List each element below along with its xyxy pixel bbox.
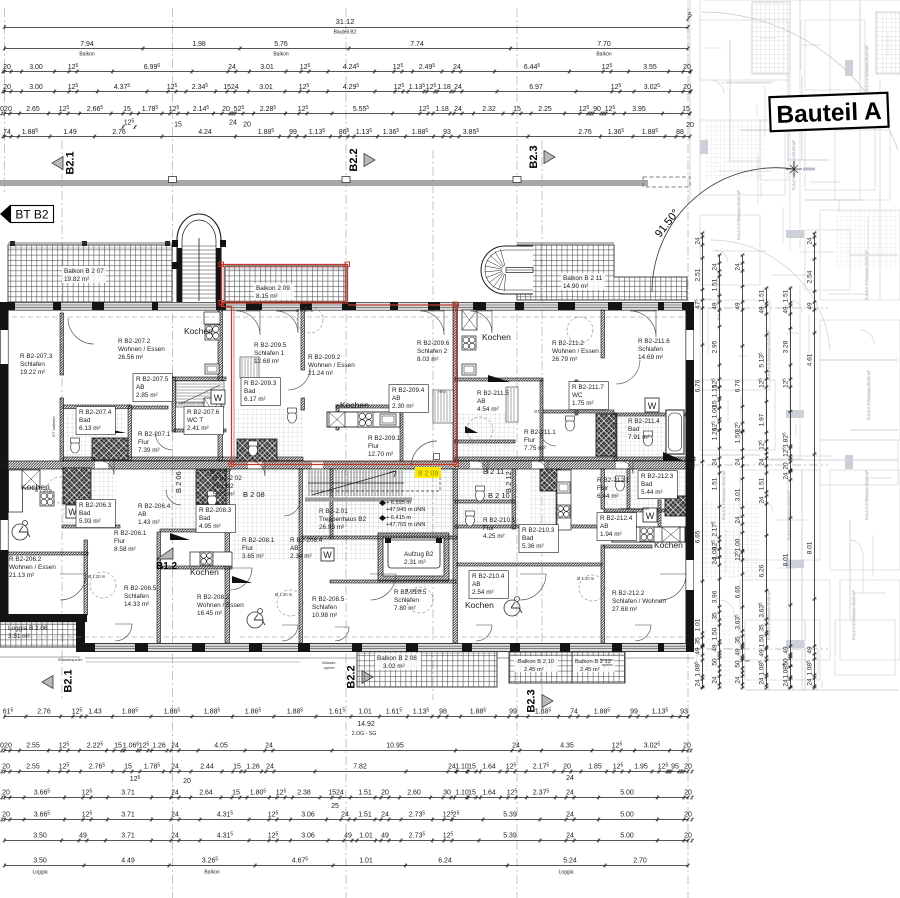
svg-text:6.76: 6.76 (735, 379, 742, 392)
svg-text:4.54 m²: 4.54 m² (477, 406, 499, 413)
svg-text:Flur: Flur (524, 437, 536, 444)
svg-text:2.60: 2.60 (407, 790, 421, 797)
svg-text:49: 49 (807, 302, 814, 310)
svg-text:1.00: 1.00 (735, 538, 742, 551)
svg-text:GT satiniert: GT satiniert (51, 416, 56, 437)
svg-text:2.30 m²: 2.30 m² (392, 403, 414, 410)
svg-text:B2.2: B2.2 (346, 665, 358, 688)
svg-text:Flur: Flur (138, 439, 150, 446)
svg-text:Kochen: Kochen (482, 332, 511, 342)
svg-text:10.98 m²: 10.98 m² (312, 612, 337, 619)
svg-text:1.51: 1.51 (759, 289, 766, 302)
svg-text:3.50: 3.50 (33, 833, 47, 840)
svg-text:6.97: 6.97 (529, 84, 543, 91)
svg-text:R B2-207.1: R B2-207.1 (138, 431, 171, 438)
svg-text:R B2-211.5: R B2-211.5 (477, 390, 509, 397)
svg-text:Balkon B 2 11: Balkon B 2 11 (563, 275, 603, 282)
svg-text:AB: AB (392, 395, 401, 402)
svg-text:27.68 m²: 27.68 m² (612, 606, 637, 613)
svg-text:Wasserspeier: Wasserspeier (58, 657, 83, 662)
svg-text:15: 15 (468, 790, 476, 797)
svg-text:Kochen: Kochen (190, 567, 219, 577)
svg-text:24: 24 (266, 764, 274, 771)
svg-text:24: 24 (512, 743, 520, 750)
svg-text:B 2 09: B 2 09 (418, 471, 438, 478)
svg-text:2.38: 2.38 (297, 790, 311, 797)
svg-text:20: 20 (2, 812, 10, 819)
svg-text:24: 24 (712, 458, 719, 466)
svg-text:Kochen: Kochen (465, 600, 494, 610)
svg-text:2.95: 2.95 (712, 340, 719, 353)
svg-text:Schlafen: Schlafen (124, 593, 149, 600)
svg-text:GT: GT (534, 409, 541, 414)
svg-text:49: 49 (344, 833, 352, 840)
svg-text:1.43: 1.43 (88, 709, 102, 716)
svg-text:AB: AB (472, 581, 481, 588)
svg-text:24: 24 (735, 458, 742, 466)
svg-text:Flur: Flur (597, 485, 609, 492)
svg-text:1.50: 1.50 (759, 634, 766, 647)
svg-text:1524: 1524 (328, 790, 344, 797)
svg-text:24: 24 (759, 496, 766, 504)
svg-text:5.39: 5.39 (503, 812, 517, 819)
svg-text:Balkon: Balkon (273, 52, 289, 58)
svg-text:5.00: 5.00 (620, 790, 634, 797)
svg-text:20: 20 (563, 764, 571, 771)
svg-text:Wohnen / Essen: Wohnen / Essen (552, 348, 599, 355)
svg-text:20: 20 (683, 743, 691, 750)
svg-text:020: 020 (0, 743, 12, 750)
svg-text:R B2-210.4: R B2-210.4 (472, 573, 505, 580)
svg-text:R B2-2 02: R B2-2 02 (213, 475, 242, 482)
svg-text:15: 15 (682, 106, 690, 113)
svg-text:20: 20 (222, 106, 230, 113)
svg-text:1.26: 1.26 (152, 743, 166, 750)
svg-text:2.55: 2.55 (26, 764, 40, 771)
svg-text:49: 49 (759, 306, 766, 314)
svg-text:24: 24 (454, 106, 462, 113)
svg-text:R B2-2.01: R B2-2.01 (319, 508, 348, 515)
svg-text:3.28: 3.28 (783, 340, 790, 353)
svg-text:2.65: 2.65 (26, 106, 40, 113)
svg-text:7.91 m²: 7.91 m² (628, 434, 650, 441)
svg-text:Bauteil A: Bauteil A (776, 98, 883, 129)
svg-text:R B2-207.3: R B2-207.3 (20, 353, 53, 360)
svg-text:+ 6.595 m: + 6.595 m (386, 500, 411, 506)
svg-text:35: 35 (712, 612, 719, 620)
svg-text:B 2 12: B 2 12 (504, 471, 513, 493)
svg-text:+47.945 m üNN: +47.945 m üNN (386, 507, 425, 513)
svg-text:2.45 m²: 2.45 m² (524, 667, 544, 673)
svg-text:R A-0 0 2 Wohnen 00.00 m²: R A-0 0 2 Wohnen 00.00 m² (864, 45, 869, 95)
svg-text:24: 24 (453, 64, 461, 71)
svg-text:2.85 m²: 2.85 m² (136, 392, 158, 399)
svg-text:W: W (646, 511, 655, 521)
svg-text:50: 50 (735, 660, 742, 668)
svg-text:B2.2: B2.2 (348, 148, 360, 171)
svg-text:Ø 1.20 m: Ø 1.20 m (577, 576, 595, 581)
svg-text:15: 15 (114, 743, 122, 750)
svg-text:2.64: 2.64 (199, 790, 213, 797)
svg-text:R B2-211.1: R B2-211.1 (524, 429, 556, 436)
svg-text:Wohnen / Essen: Wohnen / Essen (197, 602, 244, 609)
svg-text:5.93 m²: 5.93 m² (79, 518, 101, 525)
svg-text:Bad: Bad (628, 426, 640, 433)
svg-text:Schlafen / Wohnen: Schlafen / Wohnen (612, 598, 666, 605)
svg-text:R B2-209.3: R B2-209.3 (244, 380, 277, 387)
svg-text:24: 24 (759, 677, 766, 685)
svg-text:5.44 m²: 5.44 m² (641, 489, 663, 496)
svg-text:6.76: 6.76 (695, 379, 702, 392)
svg-text:R B2-209.6: R B2-209.6 (417, 340, 450, 347)
svg-text:Kochen: Kochen (654, 540, 683, 550)
svg-text:AB: AB (600, 523, 609, 530)
svg-text:1524: 1524 (223, 84, 239, 91)
svg-text:14.90 m²: 14.90 m² (563, 283, 588, 290)
svg-text:20: 20 (684, 764, 692, 771)
svg-text:24: 24 (229, 120, 237, 127)
svg-text:speier: speier (324, 665, 336, 670)
svg-text:2.32: 2.32 (482, 106, 496, 113)
svg-text:4.61: 4.61 (807, 353, 814, 366)
svg-text:26.93 m²: 26.93 m² (319, 524, 344, 531)
svg-text:35: 35 (759, 624, 766, 632)
svg-text:16.45 m²: 16.45 m² (197, 610, 222, 617)
svg-text:20: 20 (3, 84, 11, 91)
svg-text:20: 20 (684, 790, 692, 797)
svg-text:2.25: 2.25 (538, 106, 552, 113)
svg-text:Flur: Flur (114, 538, 126, 545)
svg-text:1.26: 1.26 (712, 427, 719, 440)
svg-text:49: 49 (712, 644, 719, 652)
svg-text:49: 49 (807, 646, 814, 654)
svg-text:3.95: 3.95 (632, 106, 646, 113)
svg-text:3.71: 3.71 (121, 833, 135, 840)
svg-text:2.76: 2.76 (37, 709, 51, 716)
svg-text:3.50: 3.50 (33, 858, 47, 865)
svg-text:24: 24 (783, 679, 790, 687)
svg-text:35: 35 (695, 637, 702, 645)
svg-text:R A-0 0 2 Wohnen 00.00 m²: R A-0 0 2 Wohnen 00.00 m² (864, 470, 869, 520)
svg-text:3.55: 3.55 (643, 64, 657, 71)
svg-text:24: 24 (695, 237, 702, 245)
svg-text:Aufzug B2: Aufzug B2 (404, 551, 434, 558)
svg-text:1.00: 1.00 (712, 405, 719, 418)
svg-text:Kochen: Kochen (21, 482, 50, 492)
svg-text:Wohnen / Essen: Wohnen / Essen (308, 362, 355, 369)
svg-text:B 2 07: B 2 07 (210, 467, 232, 476)
svg-text:24: 24 (454, 84, 462, 91)
svg-text:3.71: 3.71 (121, 812, 135, 819)
svg-text:49: 49 (735, 648, 742, 656)
svg-text:10.95: 10.95 (386, 743, 404, 750)
svg-text:3.01: 3.01 (259, 84, 273, 91)
svg-text:R B2-212.2: R B2-212.2 (612, 590, 645, 597)
svg-text:AB: AB (290, 545, 299, 552)
svg-text:20: 20 (2, 764, 10, 771)
svg-text:24: 24 (171, 812, 179, 819)
svg-text:6.24: 6.24 (438, 858, 452, 865)
svg-text:7.74: 7.74 (410, 41, 424, 48)
svg-text:50: 50 (712, 658, 719, 666)
svg-text:Ø 1.20 m: Ø 1.20 m (296, 308, 314, 313)
svg-text:R B2-207.5: R B2-207.5 (136, 376, 169, 383)
svg-text:Flur: Flur (242, 545, 254, 552)
svg-text:Ø 1.20 m: Ø 1.20 m (275, 592, 293, 597)
svg-text:B2.1: B2.1 (63, 669, 75, 692)
svg-text:R B2-211.7: R B2-211.7 (572, 384, 604, 391)
svg-text:24: 24 (712, 676, 719, 684)
svg-text:1.51: 1.51 (358, 790, 372, 797)
svg-text:20: 20 (683, 64, 691, 71)
svg-text:93: 93 (443, 129, 451, 136)
svg-text:R B2-212.3: R B2-212.3 (641, 473, 674, 480)
svg-text:1.01: 1.01 (359, 833, 373, 840)
svg-text:4.24: 4.24 (198, 129, 212, 136)
svg-text:5.00: 5.00 (620, 812, 634, 819)
svg-text:B2.1: B2.1 (65, 151, 77, 174)
svg-text:99: 99 (630, 709, 638, 716)
svg-text:1.85: 1.85 (588, 764, 602, 771)
svg-text:90: 90 (593, 106, 601, 113)
svg-text:20: 20 (381, 790, 389, 797)
svg-text:Balkon: Balkon (204, 870, 220, 876)
svg-text:5.24: 5.24 (563, 858, 577, 865)
svg-text:Flur: Flur (368, 443, 380, 450)
svg-text:6.26: 6.26 (759, 564, 766, 577)
svg-text:1.00: 1.00 (712, 546, 719, 559)
svg-text:Loggia: Loggia (32, 870, 47, 876)
svg-text:Schlafen 1: Schlafen 1 (254, 350, 285, 357)
svg-text:R B2-208.2: R B2-208.2 (197, 594, 230, 601)
svg-text:5.39: 5.39 (503, 833, 517, 840)
svg-text:R A-0 0 2 Wohnen 00.00 m²: R A-0 0 2 Wohnen 00.00 m² (851, 590, 856, 640)
svg-text:20: 20 (684, 812, 692, 819)
svg-text:1.26: 1.26 (246, 764, 260, 771)
svg-text:24: 24 (695, 679, 702, 687)
svg-text:R B2-210.1: R B2-210.1 (483, 517, 516, 524)
svg-text:24: 24 (566, 790, 574, 797)
svg-text:26.79 m²: 26.79 m² (552, 356, 577, 363)
svg-text:2.70: 2.70 (633, 858, 647, 865)
svg-text:2.34 m²: 2.34 m² (290, 553, 312, 560)
svg-text:99: 99 (509, 709, 517, 716)
svg-text:4.49: 4.49 (121, 858, 135, 865)
svg-text:12.68 m²: 12.68 m² (254, 358, 279, 365)
svg-text:49: 49 (735, 302, 742, 310)
svg-text:1.49: 1.49 (63, 129, 77, 136)
svg-text:15: 15 (468, 764, 476, 771)
svg-text:24: 24 (735, 516, 742, 524)
svg-text:24: 24 (265, 743, 273, 750)
svg-text:Schlafen: Schlafen (638, 346, 663, 353)
svg-text:49: 49 (783, 646, 790, 654)
svg-text:1.01: 1.01 (359, 858, 373, 865)
svg-text:49: 49 (712, 302, 719, 310)
svg-text:24: 24 (341, 812, 349, 819)
svg-text:Balkon: Balkon (79, 52, 95, 58)
svg-text:24: 24 (171, 833, 179, 840)
svg-text:1.64: 1.64 (482, 790, 496, 797)
svg-text:4.35: 4.35 (560, 743, 574, 750)
svg-text:15: 15 (513, 106, 521, 113)
svg-text:R B2-206.4: R B2-206.4 (138, 503, 171, 510)
svg-text:74: 74 (3, 129, 11, 136)
svg-text:1.10: 1.10 (455, 790, 469, 797)
svg-text:1.75 m²: 1.75 m² (572, 400, 594, 407)
svg-text:1.01: 1.01 (695, 618, 702, 631)
svg-text:15: 15 (174, 122, 182, 129)
svg-text:AB: AB (138, 511, 147, 518)
svg-text:2.31 m²: 2.31 m² (404, 559, 426, 566)
svg-text:1.10: 1.10 (455, 764, 469, 771)
svg-text:8.58 m²: 8.58 m² (114, 546, 136, 553)
svg-text:Ø 1.20 m: Ø 1.20 m (88, 574, 106, 579)
svg-text:speier: speier (602, 662, 614, 667)
svg-text:R B2-210.5: R B2-210.5 (394, 589, 427, 596)
svg-text:35: 35 (735, 636, 742, 644)
svg-text:AB: AB (477, 398, 486, 405)
svg-text:Wohnen / Essen: Wohnen / Essen (118, 346, 165, 353)
svg-text:6.65: 6.65 (735, 585, 742, 598)
svg-text:14.33 m²: 14.33 m² (124, 601, 149, 608)
svg-text:24: 24 (783, 472, 790, 480)
svg-text:5.95 m²: 5.95 m² (213, 491, 235, 498)
svg-text:B1.2: B1.2 (156, 561, 178, 572)
svg-text:7.82: 7.82 (353, 764, 367, 771)
svg-text:-Balkon B 2 10: -Balkon B 2 10 (516, 659, 554, 665)
svg-text:7.94: 7.94 (80, 41, 94, 48)
svg-text:3.96: 3.96 (712, 590, 719, 603)
svg-text:R B2-208.1: R B2-208.1 (242, 537, 275, 544)
svg-text:3.02 m²: 3.02 m² (383, 663, 405, 670)
svg-text:24: 24 (381, 812, 389, 819)
svg-text:2.76: 2.76 (578, 129, 592, 136)
svg-text:R B2-209.1: R B2-209.1 (368, 435, 401, 442)
svg-text:95: 95 (671, 764, 679, 771)
svg-text:1.51: 1.51 (783, 289, 790, 302)
svg-text:8.03 m²: 8.03 m² (417, 356, 439, 363)
svg-text:12.70 m²: 12.70 m² (368, 451, 393, 458)
svg-text:93: 93 (680, 709, 688, 716)
svg-text:88: 88 (676, 129, 684, 136)
svg-text:1.50: 1.50 (712, 627, 719, 640)
svg-text:24: 24 (735, 676, 742, 684)
svg-text:Schlafen 2: Schlafen 2 (417, 348, 448, 355)
svg-text:Treppenhaus B2: Treppenhaus B2 (319, 516, 366, 523)
svg-text:BT B2: BT B2 (15, 208, 48, 222)
svg-text:21.24 m²: 21.24 m² (308, 370, 333, 377)
svg-text:Balkon 2 09: Balkon 2 09 (256, 285, 290, 292)
svg-text:24: 24 (171, 743, 179, 750)
svg-text:6.13 m²: 6.13 m² (79, 425, 101, 432)
svg-text:R B2-207.4: R B2-207.4 (79, 409, 112, 416)
svg-text:R B2-209.4: R B2-209.4 (392, 387, 425, 394)
svg-text:R B2-207.6: R B2-207.6 (187, 409, 220, 416)
svg-text:2.54 m²: 2.54 m² (472, 589, 494, 596)
svg-text:R B2-210.3: R B2-210.3 (522, 527, 555, 534)
svg-text:24: 24 (228, 64, 236, 71)
svg-text:3.51 m²: 3.51 m² (8, 633, 30, 640)
svg-text:Bad: Bad (79, 417, 91, 424)
svg-text:74: 74 (570, 709, 578, 716)
svg-text:1.01: 1.01 (358, 709, 372, 716)
svg-text:Flur: Flur (483, 525, 495, 532)
svg-text:1.51: 1.51 (358, 812, 372, 819)
svg-text:3.65 m²: 3.65 m² (242, 553, 264, 560)
svg-text:Schlafen: Schlafen (312, 604, 337, 611)
svg-text:Schlafen: Schlafen (20, 361, 45, 368)
svg-text:4.25 m²: 4.25 m² (483, 533, 505, 540)
svg-text:2.76: 2.76 (112, 129, 126, 136)
svg-text:3.01: 3.01 (735, 488, 742, 501)
svg-text:49: 49 (759, 649, 766, 657)
svg-text:1.51: 1.51 (712, 278, 719, 291)
svg-text:21.13 m²: 21.13 m² (9, 572, 34, 579)
svg-text:24: 24 (807, 678, 814, 686)
svg-text:20: 20 (684, 833, 692, 840)
svg-text:Bad: Bad (522, 535, 534, 542)
svg-text:7.70: 7.70 (597, 41, 611, 48)
svg-text:49: 49 (695, 647, 702, 655)
svg-text:1.18: 1.18 (437, 84, 451, 91)
svg-text:8.01: 8.01 (783, 553, 790, 566)
svg-text:Bad: Bad (244, 388, 256, 395)
svg-text:99: 99 (289, 129, 297, 136)
svg-text:Balkon B 2 08: Balkon B 2 08 (377, 655, 417, 662)
svg-text:49: 49 (381, 833, 389, 840)
svg-text:3.00: 3.00 (29, 64, 43, 71)
svg-text:24: 24 (735, 263, 742, 271)
svg-text:24: 24 (807, 237, 814, 245)
svg-text:4.05: 4.05 (214, 743, 228, 750)
svg-text:Bad: Bad (641, 481, 653, 488)
svg-text:020: 020 (0, 106, 12, 113)
svg-text:R B2-209.2: R B2-209.2 (308, 354, 341, 361)
svg-text:R B2-209.5: R B2-209.5 (254, 342, 287, 349)
svg-text:R B2-212.4: R B2-212.4 (600, 515, 633, 522)
svg-text:7.80 m²: 7.80 m² (394, 605, 416, 612)
svg-text:5.00: 5.00 (620, 833, 634, 840)
svg-text:98: 98 (439, 709, 447, 716)
svg-text:15: 15 (233, 764, 241, 771)
svg-text:Heizkreisverteiler: Heizkreisverteiler (620, 507, 650, 511)
svg-text:20: 20 (183, 778, 191, 785)
svg-text:24: 24 (566, 775, 574, 782)
svg-text:2.OG - SG: 2.OG - SG (352, 731, 377, 737)
svg-text:1.51: 1.51 (712, 477, 719, 490)
svg-text:2.41 m²: 2.41 m² (187, 425, 209, 432)
svg-text:R B2-206.5: R B2-206.5 (124, 585, 157, 592)
svg-text:AB: AB (136, 384, 145, 391)
svg-text:Bad: Bad (199, 515, 211, 522)
svg-text:R B2-206.1: R B2-206.1 (114, 530, 147, 537)
svg-text:W: W (648, 401, 657, 411)
svg-text:WC: WC (572, 392, 583, 399)
svg-text:6.17 m²: 6.17 m² (244, 396, 266, 403)
svg-text:1.15: 1.15 (712, 384, 719, 397)
svg-text:WC T: WC T (187, 417, 203, 424)
svg-text:Kochen: Kochen (184, 326, 213, 336)
svg-text:R B2-211.6: R B2-211.6 (638, 338, 670, 345)
svg-text:R B2-208.5: R B2-208.5 (312, 596, 345, 603)
svg-text:2.45 m²: 2.45 m² (580, 667, 600, 673)
svg-text:W: W (323, 550, 332, 560)
svg-text:B 2 08: B 2 08 (243, 490, 265, 499)
svg-text:15: 15 (232, 790, 240, 797)
svg-text:Balkon: Balkon (596, 52, 612, 58)
svg-text:Wohnen / Essen: Wohnen / Essen (9, 564, 56, 571)
